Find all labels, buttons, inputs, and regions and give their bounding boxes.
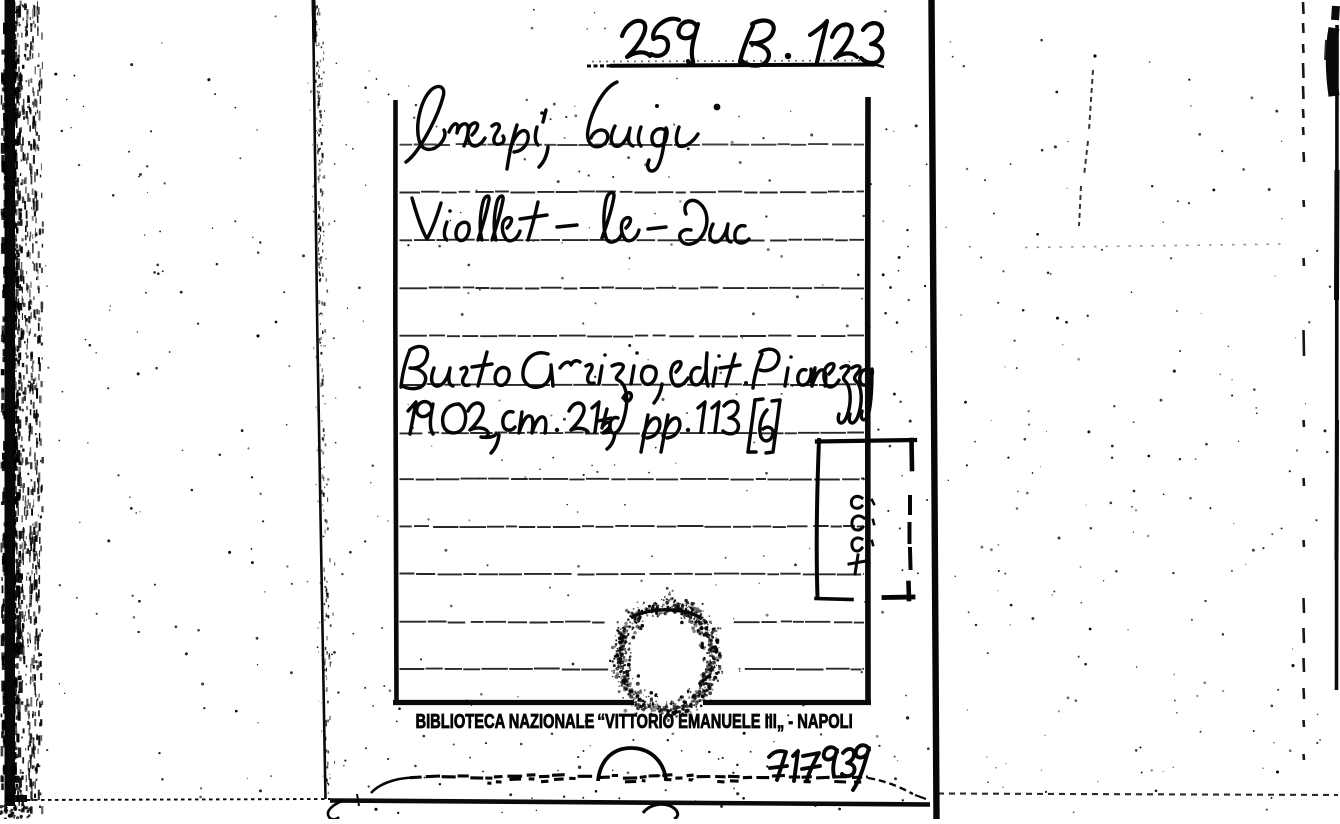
svg-text:BIBLIOTECA NAZIONALE ‘‘VITTORI: BIBLIOTECA NAZIONALE ‘‘VITTORIO EMANUELE… (416, 710, 853, 733)
